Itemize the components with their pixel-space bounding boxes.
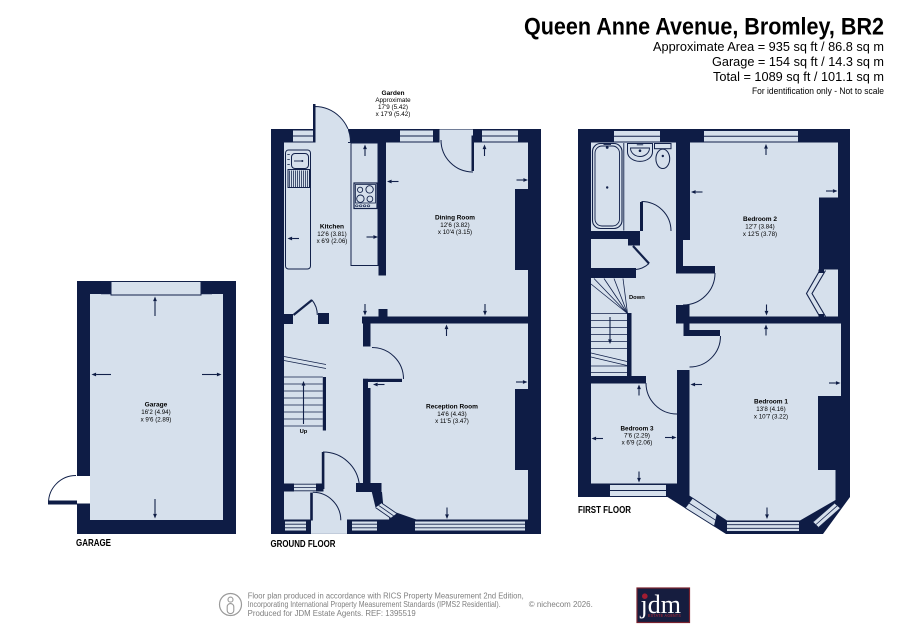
svg-text:Queen Anne Avenue, Bromley, BR: Queen Anne Avenue, Bromley, BR2 [524, 14, 884, 41]
svg-text:Garage: Garage [145, 402, 168, 409]
svg-text:x 12'5 (3.78): x 12'5 (3.78) [743, 231, 777, 238]
svg-text:Garden: Garden [381, 90, 404, 97]
svg-text:Approximate: Approximate [375, 97, 411, 104]
svg-text:x 6'9 (2.06): x 6'9 (2.06) [317, 238, 348, 245]
svg-text:x 6'9 (2.06): x 6'9 (2.06) [622, 440, 653, 447]
svg-text:12'6 (3.82): 12'6 (3.82) [440, 222, 469, 229]
svg-text:x 10'4 (3.15): x 10'4 (3.15) [438, 229, 472, 236]
svg-text:12'6 (3.81): 12'6 (3.81) [317, 231, 346, 238]
svg-text:x 17'9 (5.42): x 17'9 (5.42) [376, 111, 411, 118]
svg-text:Approximate Area = 935 sq ft /: Approximate Area = 935 sq ft / 86.8 sq m [653, 39, 884, 54]
svg-text:x 10'7 (3.22): x 10'7 (3.22) [754, 414, 788, 421]
svg-text:© nichecom 2026.: © nichecom 2026. [529, 600, 593, 609]
svg-text:For identification only - Not: For identification only - Not to scale [752, 86, 884, 97]
svg-text:x 11'5 (3.47): x 11'5 (3.47) [435, 418, 469, 425]
svg-text:12'7 (3.84): 12'7 (3.84) [745, 224, 774, 231]
svg-text:x 9'6 (2.89): x 9'6 (2.89) [141, 417, 172, 424]
svg-text:Dining Room: Dining Room [435, 215, 475, 222]
svg-text:Reception Room: Reception Room [426, 404, 478, 411]
svg-text:Garage = 154 sq ft / 14.3 sq m: Garage = 154 sq ft / 14.3 sq m [712, 54, 884, 69]
svg-text:13'8 (4.16): 13'8 (4.16) [756, 406, 785, 413]
svg-text:7'6 (2.29): 7'6 (2.29) [624, 433, 650, 440]
svg-text:Total = 1089 sq ft / 101.1 sq: Total = 1089 sq ft / 101.1 sq m [713, 69, 884, 84]
svg-text:FIRST FLOOR: FIRST FLOOR [578, 505, 632, 516]
svg-text:Incorporating International Pr: Incorporating International Property Mea… [248, 600, 501, 609]
svg-text:Bedroom 2: Bedroom 2 [743, 216, 777, 223]
svg-text:Down: Down [629, 295, 645, 301]
svg-text:Kitchen: Kitchen [320, 224, 344, 231]
svg-text:Up: Up [300, 429, 308, 435]
svg-text:ESTATE AGENTS: ESTATE AGENTS [648, 613, 681, 618]
svg-text:Bedroom 1: Bedroom 1 [754, 399, 788, 406]
svg-text:Floor plan produced in accorda: Floor plan produced in accordance with R… [248, 591, 524, 600]
svg-text:17'9 (5.42): 17'9 (5.42) [378, 104, 408, 111]
svg-text:Bedroom 3: Bedroom 3 [621, 426, 654, 433]
svg-text:Produced for JDM Estate Agents: Produced for JDM Estate Agents. REF: 139… [248, 609, 416, 618]
svg-text:16'2 (4.94): 16'2 (4.94) [141, 409, 170, 416]
svg-text:GARAGE: GARAGE [76, 538, 111, 549]
svg-text:GROUND FLOOR: GROUND FLOOR [271, 539, 337, 550]
svg-text:14'6 (4.43): 14'6 (4.43) [437, 411, 466, 418]
